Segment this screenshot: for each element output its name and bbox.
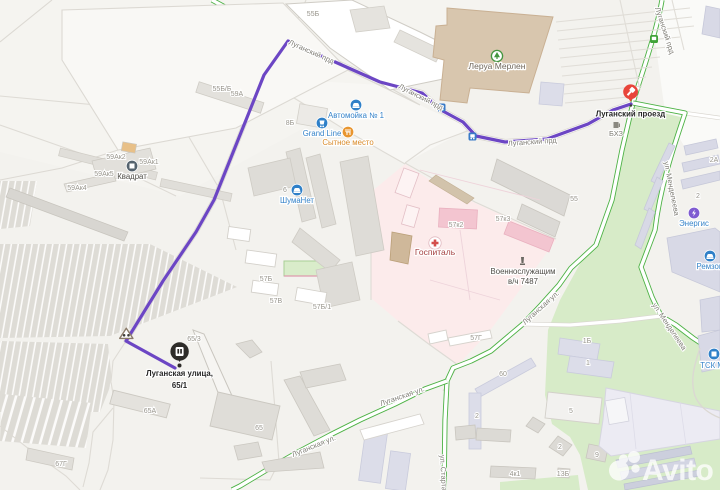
svg-text:Энергис: Энергис [679, 219, 709, 228]
svg-text:57Г: 57Г [470, 335, 482, 342]
svg-text:9: 9 [595, 452, 599, 459]
svg-text:Ремзона: Ремзона [697, 262, 720, 271]
svg-text:Квадрат: Квадрат [117, 172, 147, 181]
svg-text:5: 5 [569, 408, 573, 415]
svg-text:1Б: 1Б [583, 338, 592, 345]
svg-text:65А: 65А [144, 408, 157, 415]
svg-text:57Б/1: 57Б/1 [313, 304, 331, 311]
svg-text:ШумаНет: ШумаНет [280, 196, 314, 205]
svg-text:ТСК М: ТСК М [700, 361, 720, 370]
svg-text:8Б: 8Б [286, 120, 295, 127]
svg-text:Луганский проезд: Луганский проезд [596, 110, 666, 119]
svg-text:13Б: 13Б [557, 471, 570, 478]
svg-text:59Ак5: 59Ак5 [94, 171, 114, 178]
svg-text:6: 6 [283, 187, 287, 194]
svg-text:55Б: 55Б [307, 11, 320, 18]
svg-text:ул. Старта: ул. Старта [438, 455, 449, 490]
svg-text:65: 65 [255, 425, 263, 432]
svg-text:БХЗ: БХЗ [609, 129, 623, 138]
svg-text:Госпиталь: Госпиталь [415, 247, 456, 257]
svg-text:Сытное место: Сытное место [322, 138, 374, 147]
svg-text:4к1: 4к1 [510, 471, 521, 478]
svg-text:59Ак2: 59Ак2 [106, 154, 126, 161]
svg-text:Grand Line: Grand Line [303, 129, 342, 138]
svg-text:2: 2 [696, 193, 700, 200]
svg-text:2: 2 [558, 444, 562, 451]
svg-text:57к2: 57к2 [449, 222, 464, 229]
svg-text:1: 1 [586, 360, 590, 367]
svg-text:59Ак1: 59Ак1 [139, 159, 159, 166]
svg-text:2: 2 [475, 413, 479, 420]
svg-text:Автомойка № 1: Автомойка № 1 [328, 111, 384, 120]
svg-text:в/ч 7487: в/ч 7487 [508, 277, 538, 286]
svg-text:2А: 2А [710, 157, 719, 164]
svg-text:Avito: Avito [642, 454, 714, 487]
svg-text:55: 55 [570, 196, 578, 203]
svg-text:60: 60 [499, 371, 507, 378]
svg-text:Леруа Мерлен: Леруа Мерлен [469, 61, 526, 71]
svg-text:59Ак4: 59Ак4 [67, 185, 87, 192]
svg-text:57В: 57В [270, 298, 283, 305]
svg-text:65/1: 65/1 [172, 381, 188, 390]
svg-text:Луганская улица,: Луганская улица, [146, 369, 213, 378]
svg-text:67Г: 67Г [55, 461, 67, 468]
svg-text:57к3: 57к3 [496, 216, 511, 223]
svg-text:57Б: 57Б [260, 276, 273, 283]
svg-text:59А: 59А [231, 91, 244, 98]
svg-text:55Б/Б: 55Б/Б [213, 86, 232, 93]
svg-text:Военнослужащим: Военнослужащим [491, 267, 556, 276]
svg-text:65/3: 65/3 [187, 336, 201, 343]
